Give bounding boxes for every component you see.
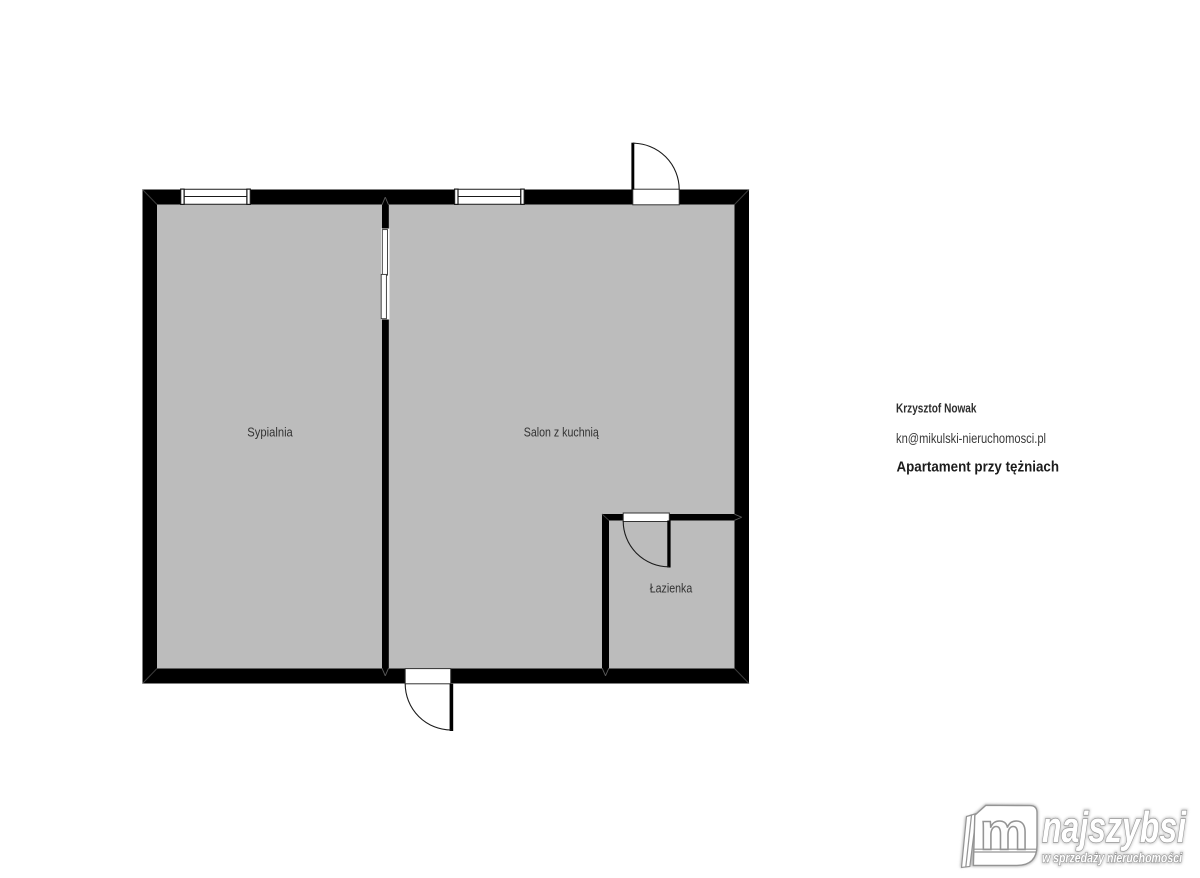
svg-text:Apartament przy tężniach: Apartament przy tężniach — [897, 458, 1060, 475]
svg-text:m: m — [980, 803, 1029, 862]
svg-text:Łazienka: Łazienka — [650, 581, 693, 596]
svg-text:Sypialnia: Sypialnia — [247, 424, 293, 439]
svg-text:Salon z kuchnią: Salon z kuchnią — [524, 424, 600, 439]
svg-text:kn@mikulski-nieruchomosci.pl: kn@mikulski-nieruchomosci.pl — [896, 431, 1046, 446]
svg-text:najszybsi: najszybsi — [1042, 803, 1187, 852]
svg-text:Krzysztof Nowak: Krzysztof Nowak — [896, 400, 977, 415]
svg-text:w sprzedaży nieruchomości: w sprzedaży nieruchomości — [1042, 851, 1182, 866]
